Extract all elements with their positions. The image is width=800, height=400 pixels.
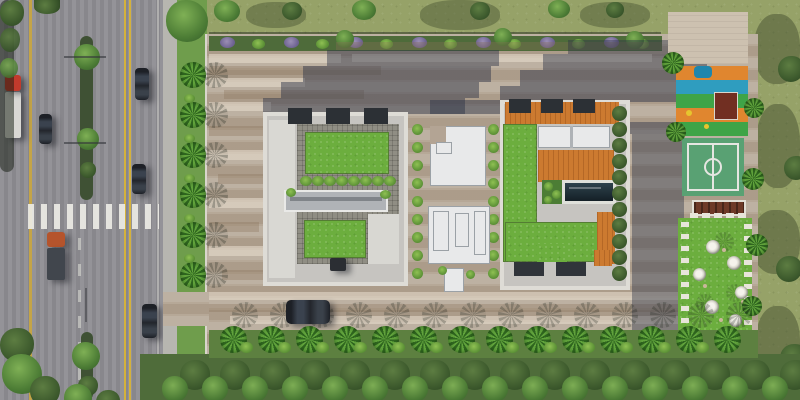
pergola — [288, 108, 312, 124]
tree — [0, 28, 20, 52]
tree — [0, 0, 24, 26]
road-center-line — [129, 0, 131, 400]
pergola — [573, 99, 595, 113]
shrub — [380, 190, 391, 199]
palm-tree — [744, 98, 764, 118]
street-light-arm — [64, 142, 106, 144]
hedge — [612, 250, 627, 265]
planter-shrub — [488, 142, 499, 153]
median-tree — [72, 342, 100, 370]
palm-tree — [180, 102, 206, 128]
planter-shrub — [488, 124, 499, 135]
planter-shrub — [412, 268, 423, 279]
shrub — [582, 342, 595, 353]
hedge — [612, 154, 627, 169]
flower-bush — [220, 37, 235, 48]
maintenance-cart — [330, 258, 346, 271]
planter-shrub — [412, 178, 423, 189]
shrub — [184, 214, 195, 223]
tree — [282, 376, 308, 400]
tree — [784, 156, 800, 180]
tree — [562, 376, 588, 400]
parapet — [404, 112, 408, 286]
tree — [30, 376, 60, 400]
stepping-stone — [681, 222, 689, 227]
tree — [642, 376, 668, 400]
shrub — [620, 342, 633, 353]
median-tree — [80, 162, 96, 178]
planter-shrub — [488, 160, 499, 171]
lane-dash — [78, 316, 81, 328]
hedge — [612, 106, 627, 121]
palm-shadow — [498, 302, 524, 328]
planter-shrub — [466, 270, 475, 279]
hedge — [612, 202, 627, 217]
tree — [0, 58, 18, 78]
white-roof-bar — [538, 126, 610, 148]
tree — [442, 376, 468, 400]
building-shadow — [520, 70, 692, 86]
pergola — [509, 99, 531, 113]
shrub — [372, 176, 384, 186]
palm-tree — [746, 234, 768, 256]
pergola — [326, 108, 350, 124]
tree — [682, 376, 708, 400]
hedge — [612, 170, 627, 185]
planter-shrub — [488, 178, 499, 189]
parapet — [263, 112, 267, 286]
roof-panel — [474, 211, 486, 255]
courtyard-lawn — [305, 132, 389, 174]
palm-shadow — [688, 302, 714, 328]
palm-shadow — [460, 302, 486, 328]
palm-tree — [662, 52, 684, 74]
tree — [282, 2, 302, 20]
road-center-line — [124, 0, 126, 400]
shrub — [468, 342, 481, 353]
roof-deck — [594, 250, 612, 266]
shrub — [324, 176, 336, 186]
patio-chair — [703, 284, 707, 288]
street-light-pole — [85, 288, 87, 322]
palm-tree — [180, 62, 206, 88]
palm-tree — [180, 142, 206, 168]
shrub — [300, 176, 312, 186]
planter-shrub — [438, 266, 447, 275]
building-shadow — [632, 134, 684, 330]
court-circle — [704, 158, 722, 176]
truck-box — [47, 248, 65, 280]
tree — [242, 376, 268, 400]
rooftop-box — [436, 142, 452, 154]
planter-shrub — [412, 124, 423, 135]
stepping-stone — [702, 213, 710, 218]
palm-shadow — [422, 302, 448, 328]
patio-umbrella — [706, 240, 720, 254]
play-structure — [714, 92, 738, 120]
roof-lawn — [537, 244, 567, 262]
car — [142, 304, 157, 338]
tree — [482, 376, 508, 400]
stepping-stone — [681, 282, 689, 287]
shrub — [384, 176, 396, 186]
tree — [522, 376, 548, 400]
hedge — [612, 266, 627, 281]
tree — [778, 56, 800, 82]
stepping-stone — [681, 234, 689, 239]
shrub — [360, 176, 372, 186]
shrub — [430, 342, 443, 353]
planter-shrub — [412, 232, 423, 243]
shrub — [552, 190, 561, 199]
tree — [202, 376, 228, 400]
palm-tree — [666, 122, 686, 142]
stepping-stone — [744, 260, 752, 265]
tree — [548, 0, 570, 18]
shrub — [240, 342, 253, 353]
paving-stripe — [218, 174, 264, 184]
pool — [565, 183, 613, 201]
shrub — [544, 342, 557, 353]
hedge — [612, 138, 627, 153]
palm-tree — [180, 262, 206, 288]
shrub — [312, 176, 324, 186]
stepping-stone — [738, 213, 746, 218]
hedge — [612, 122, 627, 137]
planter-shrub — [412, 142, 423, 153]
canopy-shadow-line — [290, 197, 382, 201]
shrub — [184, 254, 195, 263]
palm-shadow — [384, 302, 410, 328]
play-toy — [704, 124, 709, 129]
shrub — [336, 176, 348, 186]
stepping-stone — [744, 272, 752, 277]
tree — [722, 376, 748, 400]
planter-shrub — [412, 250, 423, 261]
tree — [470, 2, 490, 20]
palm-tree — [180, 182, 206, 208]
pergola — [556, 262, 586, 276]
shrub — [544, 196, 552, 204]
shrub — [286, 188, 296, 197]
lane-dash — [78, 290, 81, 302]
street-light-arm — [64, 56, 106, 58]
shrub — [658, 342, 671, 353]
canopy-structure — [284, 190, 388, 212]
planter-shrub — [412, 196, 423, 207]
lane-dash — [78, 264, 81, 276]
palm-shadow — [346, 302, 372, 328]
median-tree — [77, 128, 99, 150]
palm-shadow — [536, 302, 562, 328]
play-toy — [686, 110, 692, 116]
play-slide — [694, 66, 712, 78]
shrub — [184, 174, 195, 183]
tree — [602, 376, 628, 400]
pergola — [541, 99, 563, 113]
tree — [402, 376, 428, 400]
palm-shadow — [612, 302, 638, 328]
lane-dash — [78, 238, 81, 250]
truck-cab — [47, 232, 65, 247]
sidewalk — [163, 0, 177, 400]
tree — [606, 2, 624, 18]
tree — [352, 0, 376, 20]
shrub — [544, 182, 553, 191]
shrub — [348, 176, 360, 186]
stepping-stone — [690, 213, 698, 218]
paving-stripe — [222, 270, 264, 280]
stepping-stone — [681, 270, 689, 275]
courtyard-paving — [368, 214, 399, 264]
shrub — [354, 342, 367, 353]
shrub — [696, 342, 709, 353]
tree — [762, 376, 788, 400]
patio-chair — [722, 248, 726, 252]
patio-umbrella — [693, 268, 706, 281]
parapet — [263, 282, 408, 286]
tree — [166, 0, 208, 42]
aerial-site-plan-render — [0, 0, 800, 400]
palm-shadow — [726, 302, 752, 328]
stepping-stone — [744, 224, 752, 229]
roof-panel — [433, 211, 449, 251]
paving-stripe — [209, 54, 341, 63]
roof-divider — [570, 126, 573, 148]
tree — [162, 376, 188, 400]
palm-shadow — [650, 302, 676, 328]
palm-shadow — [574, 302, 600, 328]
shrub — [252, 39, 265, 49]
playground-surface — [676, 66, 748, 80]
hedge — [612, 218, 627, 233]
suv — [286, 300, 330, 324]
planting-strip — [209, 330, 758, 358]
shrub — [392, 342, 405, 353]
tree — [362, 376, 388, 400]
patio-umbrella — [727, 256, 741, 270]
stepping-stone — [681, 294, 689, 299]
planter-shrub — [412, 214, 423, 225]
hedge — [612, 234, 627, 249]
playground-surface — [676, 122, 748, 136]
boundary-fence — [209, 32, 661, 34]
palm-tree — [180, 222, 206, 248]
car — [39, 114, 52, 144]
courtyard-lawn — [304, 220, 366, 258]
shrub — [278, 342, 291, 353]
building-shadow — [281, 82, 479, 98]
pergola — [364, 108, 388, 124]
planter-shrub — [412, 160, 423, 171]
shrub — [506, 342, 519, 353]
stepping-stone — [681, 258, 689, 263]
patio-chair — [719, 318, 723, 322]
parapet — [500, 286, 630, 290]
road-edge-line — [157, 0, 159, 400]
stepping-stone — [714, 213, 722, 218]
palm-tree — [714, 326, 741, 353]
shrub — [184, 94, 195, 103]
palm-shadow — [232, 302, 258, 328]
shrub — [316, 342, 329, 353]
stepping-stone — [726, 213, 734, 218]
palm-tree — [742, 168, 764, 190]
hedge — [612, 186, 627, 201]
flower-bush — [284, 37, 299, 48]
building-shadow — [430, 100, 502, 114]
crosswalk — [28, 204, 159, 229]
building-shadow — [327, 50, 499, 66]
tree — [214, 0, 240, 22]
tree — [776, 256, 800, 282]
rooftop-box — [444, 268, 464, 292]
planter-shrub — [488, 268, 499, 279]
building-shadow — [303, 66, 491, 82]
roof-panel — [455, 213, 469, 247]
shrub — [316, 39, 329, 49]
car — [135, 68, 149, 100]
car — [132, 164, 146, 194]
stepping-stone — [681, 246, 689, 251]
tree — [322, 376, 348, 400]
tree — [34, 0, 60, 14]
drive-apron — [163, 292, 209, 326]
pergola — [514, 262, 544, 276]
shrub — [184, 134, 195, 143]
pool-reflection — [569, 187, 601, 189]
roof-deck — [538, 150, 614, 182]
